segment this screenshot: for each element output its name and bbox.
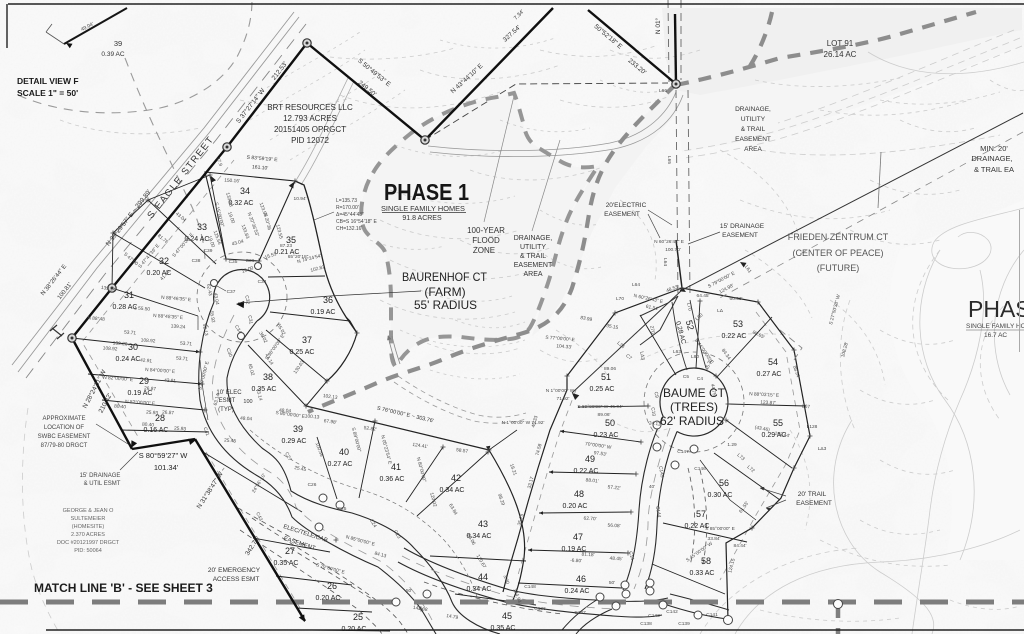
- svg-text:LOCATION OF: LOCATION OF: [44, 425, 85, 431]
- svg-text:89.06': 89.06': [598, 412, 611, 418]
- svg-text:55: 55: [773, 418, 783, 428]
- svg-text:51: 51: [601, 372, 611, 382]
- svg-text:62.70': 62.70': [583, 516, 596, 523]
- svg-text:0.24 AC: 0.24 AC: [565, 588, 590, 595]
- svg-text:39: 39: [293, 424, 303, 434]
- svg-text:& TRAIL: & TRAIL: [741, 126, 766, 133]
- svg-text:BAURENHOF CT: BAURENHOF CT: [402, 270, 488, 284]
- svg-text:65°20’18”: 65°20’18”: [288, 254, 309, 260]
- svg-text:39: 39: [114, 39, 122, 48]
- svg-text:123.87': 123.87': [760, 400, 776, 407]
- svg-text:CB=S 16°54’18" E: CB=S 16°54’18" E: [336, 219, 378, 225]
- svg-text:C39: C39: [204, 248, 213, 254]
- svg-text:81.18': 81.18': [581, 552, 594, 559]
- svg-text:C38: C38: [192, 258, 201, 264]
- svg-text:0.27 AC: 0.27 AC: [328, 461, 353, 468]
- svg-text:15' DRAINAGE: 15' DRAINAGE: [720, 223, 765, 230]
- svg-text:48: 48: [574, 489, 584, 499]
- svg-text:0.24 AC: 0.24 AC: [116, 356, 141, 363]
- svg-text:87.23: 87.23: [280, 243, 292, 249]
- svg-text:25.45: 25.45: [224, 437, 237, 444]
- svg-text:L=135.73: L=135.73: [336, 198, 357, 204]
- svg-text:MATCH LINE 'B' - SEE SHEET 3: MATCH LINE 'B' - SEE SHEET 3: [34, 581, 213, 595]
- svg-text:101.34': 101.34': [154, 463, 179, 472]
- svg-text:EASEMENT: EASEMENT: [735, 136, 771, 143]
- svg-text:38: 38: [263, 372, 273, 382]
- svg-text:45: 45: [502, 611, 512, 621]
- svg-text:30: 30: [128, 342, 138, 352]
- svg-text:88.01': 88.01': [585, 477, 598, 484]
- svg-text:L65: L65: [666, 156, 672, 164]
- svg-text:C146: C146: [694, 466, 706, 472]
- svg-text:71.92': 71.92': [557, 396, 570, 402]
- svg-text:C138: C138: [640, 621, 652, 627]
- svg-text:0.20 AC: 0.20 AC: [342, 626, 367, 633]
- svg-text:100.70': 100.70': [665, 247, 681, 253]
- svg-text:42.91: 42.91: [164, 378, 177, 385]
- svg-text:44: 44: [478, 572, 488, 582]
- svg-text:(TYP): (TYP): [218, 407, 234, 413]
- svg-text:PID 12072: PID 12072: [291, 136, 329, 145]
- svg-text:0.35 AC: 0.35 AC: [274, 560, 299, 567]
- svg-text:L128: L128: [807, 424, 818, 430]
- svg-text:46: 46: [576, 574, 586, 584]
- svg-text:DRAINAGE,: DRAINAGE,: [514, 235, 553, 242]
- svg-text:89.06: 89.06: [604, 366, 616, 372]
- svg-text:58: 58: [701, 556, 711, 566]
- svg-text:32: 32: [159, 256, 169, 266]
- svg-text:C143: C143: [648, 613, 660, 619]
- svg-text:(CENTER OF PEACE): (CENTER OF PEACE): [792, 248, 883, 258]
- svg-text:EASEMENT: EASEMENT: [722, 232, 758, 239]
- svg-text:C5: C5: [683, 374, 689, 380]
- svg-text:ACCESS ESMT: ACCESS ESMT: [213, 576, 260, 583]
- svg-text:0.27 AC: 0.27 AC: [757, 371, 782, 378]
- svg-text:0.25 AC: 0.25 AC: [590, 386, 615, 393]
- svg-text:(FARM): (FARM): [424, 285, 465, 299]
- svg-text:PHASE 1: PHASE 1: [384, 179, 469, 205]
- svg-text:56.08': 56.08': [607, 523, 620, 530]
- svg-text:AREA: AREA: [744, 146, 762, 153]
- svg-text:LΔ3: LΔ3: [818, 446, 827, 452]
- svg-text:S 80°59’27" W: S 80°59’27" W: [139, 451, 189, 460]
- svg-text:50: 50: [605, 418, 615, 428]
- svg-text:53.71: 53.71: [180, 341, 193, 348]
- svg-text:L80: L80: [691, 354, 699, 360]
- svg-text:C34: C34: [258, 279, 267, 285]
- svg-text:N 01°: N 01°: [654, 17, 662, 34]
- svg-text:SWBC EASEMENT: SWBC EASEMENT: [38, 434, 91, 440]
- svg-text:1.29: 1.29: [727, 442, 737, 448]
- svg-text:C139: C139: [678, 621, 690, 627]
- svg-text:DETAIL VIEW F: DETAIL VIEW F: [17, 76, 79, 86]
- svg-text:MIN. 20': MIN. 20': [980, 144, 1008, 153]
- svg-text:139.24: 139.24: [171, 323, 186, 330]
- svg-text:53.71: 53.71: [124, 329, 137, 336]
- svg-text:50': 50': [406, 588, 412, 594]
- svg-text:-6.80': -6.80': [570, 558, 582, 565]
- svg-text:25: 25: [353, 612, 363, 622]
- svg-text:0.22 AC: 0.22 AC: [574, 468, 599, 475]
- svg-text:C35: C35: [229, 259, 238, 265]
- svg-text:0.23 AC: 0.23 AC: [594, 432, 619, 439]
- svg-text:0.33 AC: 0.33 AC: [690, 570, 715, 577]
- svg-text:& TRAIL: & TRAIL: [520, 253, 546, 260]
- svg-text:EASEMENT: EASEMENT: [604, 211, 640, 218]
- svg-text:33: 33: [197, 222, 207, 232]
- svg-text:34: 34: [240, 186, 250, 196]
- svg-text:57.22': 57.22': [607, 484, 620, 491]
- svg-text:48.04: 48.04: [279, 407, 292, 414]
- svg-text:& UTIL ESMT: & UTIL ESMT: [84, 481, 121, 487]
- svg-text:0.19 AC: 0.19 AC: [311, 309, 336, 316]
- svg-text:(TREES): (TREES): [670, 400, 718, 414]
- svg-text:SINGLE FAMILY HOMES: SINGLE FAMILY HOMES: [381, 204, 465, 213]
- svg-text:AREA: AREA: [523, 271, 542, 278]
- svg-text:31: 31: [124, 290, 134, 300]
- svg-text:26.14 AC: 26.14 AC: [824, 50, 857, 59]
- svg-text:N 1°00'00" W: N 1°00'00" W: [546, 388, 575, 394]
- svg-text:0.36 AC: 0.36 AC: [380, 476, 405, 483]
- svg-text:16.7 AC: 16.7 AC: [984, 332, 1007, 339]
- svg-text:27: 27: [285, 546, 295, 556]
- svg-text:UTILITY: UTILITY: [741, 116, 766, 123]
- svg-text:PHASE 2: PHASE 2: [968, 296, 1024, 322]
- svg-text:20' EMERGENCY: 20' EMERGENCY: [208, 567, 261, 574]
- svg-text:62' RADIUS: 62' RADIUS: [660, 414, 724, 428]
- svg-text:DRAINAGE,: DRAINAGE,: [971, 154, 1012, 163]
- svg-text:0.20 AC: 0.20 AC: [563, 503, 588, 510]
- svg-text:53.71: 53.71: [176, 355, 189, 362]
- svg-text:20' TRAIL: 20' TRAIL: [798, 491, 827, 498]
- svg-text:36: 36: [323, 295, 333, 305]
- svg-text:0.34 AC: 0.34 AC: [467, 586, 492, 593]
- svg-text:0.25 AC: 0.25 AC: [290, 349, 315, 356]
- svg-text:26: 26: [327, 581, 337, 591]
- svg-text:48.45': 48.45': [609, 556, 622, 563]
- svg-text:ESMT: ESMT: [219, 398, 236, 404]
- svg-text:40': 40': [649, 484, 655, 490]
- svg-text:0.20 AC: 0.20 AC: [316, 595, 341, 602]
- svg-text:0.39 AC: 0.39 AC: [101, 51, 124, 58]
- svg-text:(HOMESITE): (HOMESITE): [72, 524, 105, 530]
- svg-text:APPROXIMATE: APPROXIMATE: [43, 416, 86, 422]
- svg-text:24.11': 24.11': [649, 420, 662, 427]
- svg-text:48.04: 48.04: [240, 415, 253, 422]
- svg-text:LΔ: LΔ: [717, 308, 724, 314]
- svg-text:0.29 AC: 0.29 AC: [282, 438, 307, 445]
- svg-text:25.93: 25.93: [174, 426, 187, 433]
- svg-text:56: 56: [719, 478, 729, 488]
- svg-text:FRIEDEN ZENTRUM CT: FRIEDEN ZENTRUM CT: [788, 232, 889, 242]
- svg-text:80.40: 80.40: [114, 403, 127, 410]
- svg-text:0.34 AC: 0.34 AC: [440, 487, 465, 494]
- svg-text:C36: C36: [246, 258, 255, 264]
- svg-text:ZONE: ZONE: [473, 246, 495, 255]
- svg-text:26.87: 26.87: [144, 385, 157, 392]
- svg-text:L66: L66: [659, 88, 667, 94]
- svg-text:12.793 ACRES: 12.793 ACRES: [283, 114, 337, 123]
- svg-text:37: 37: [302, 335, 312, 345]
- svg-text:C142: C142: [666, 609, 678, 615]
- svg-text:EASEMENT: EASEMENT: [514, 262, 553, 269]
- svg-text:57: 57: [696, 509, 706, 519]
- svg-text:LOT 91: LOT 91: [827, 39, 854, 48]
- svg-text:R=170.00': R=170.00': [336, 205, 359, 211]
- svg-text:10.94': 10.94': [294, 196, 307, 202]
- svg-text:15' DRAINAGE: 15' DRAINAGE: [80, 473, 121, 479]
- svg-text:C37: C37: [227, 289, 236, 295]
- svg-text:80.40: 80.40: [142, 422, 155, 429]
- svg-text:41: 41: [391, 462, 401, 472]
- svg-text:29: 29: [139, 376, 149, 386]
- svg-text:60.53': 60.53': [730, 296, 743, 302]
- svg-text:20'ELECTRIC: 20'ELECTRIC: [606, 202, 647, 209]
- svg-text:CH=132.16': CH=132.16': [336, 226, 362, 232]
- svg-text:26.87: 26.87: [162, 410, 175, 417]
- svg-text:2.370 ACRES: 2.370 ACRES: [71, 532, 105, 538]
- svg-text:53: 53: [733, 319, 743, 329]
- svg-text:47: 47: [573, 532, 583, 542]
- svg-text:43: 43: [478, 519, 488, 529]
- svg-text:55' RADIUS: 55' RADIUS: [414, 298, 477, 312]
- svg-text:C147: C147: [574, 610, 586, 616]
- svg-text:20151405 OPRGCT: 20151405 OPRGCT: [274, 125, 346, 134]
- svg-text:N 60°26'43" E: N 60°26'43" E: [654, 239, 684, 245]
- svg-text:PID: 50064: PID: 50064: [74, 548, 102, 554]
- svg-text:FLOOD: FLOOD: [472, 236, 500, 245]
- svg-text:91.8 ACRES: 91.8 ACRES: [402, 215, 442, 222]
- svg-text:0.30 AC: 0.30 AC: [708, 492, 733, 499]
- svg-text:C25: C25: [338, 506, 347, 512]
- svg-text:84.44': 84.44': [734, 543, 747, 549]
- svg-text:108.92: 108.92: [141, 337, 156, 344]
- svg-text:GEORGE & JEAN O: GEORGE & JEAN O: [63, 508, 114, 514]
- svg-text:L07: L07: [802, 404, 811, 410]
- svg-text:0.22 AC: 0.22 AC: [722, 333, 747, 340]
- svg-text:L70: L70: [616, 296, 624, 302]
- svg-text:C148: C148: [524, 584, 536, 590]
- svg-text:Δ=45°44’43": Δ=45°44’43": [336, 212, 364, 218]
- svg-text:BRT RESOURCES LLC: BRT RESOURCES LLC: [267, 103, 353, 112]
- svg-text:64.45': 64.45': [697, 293, 710, 299]
- svg-text:C4: C4: [697, 376, 703, 382]
- svg-text:S 89°00'00" W 45.04': S 89°00'00" W 45.04': [577, 404, 622, 410]
- svg-text:C141: C141: [706, 612, 718, 618]
- svg-text:42: 42: [451, 473, 461, 483]
- svg-text:150.16': 150.16': [224, 178, 240, 185]
- svg-text:SULTEMEIER: SULTEMEIER: [71, 516, 106, 522]
- svg-text:C136: C136: [534, 606, 546, 612]
- svg-text:(FUTURE): (FUTURE): [817, 263, 860, 273]
- svg-text:SINGLE FAMILY HOMES: SINGLE FAMILY HOMES: [966, 323, 1024, 330]
- svg-text:DRAINAGE,: DRAINAGE,: [735, 106, 771, 113]
- svg-text:0.16 AC: 0.16 AC: [144, 427, 169, 434]
- svg-text:33.84': 33.84': [708, 536, 721, 542]
- svg-text:40: 40: [339, 447, 349, 457]
- svg-text:& TRAIL EA: & TRAIL EA: [974, 165, 1014, 174]
- svg-text:25.93: 25.93: [146, 409, 159, 416]
- svg-text:100: 100: [243, 399, 252, 405]
- svg-text:DOC #20121997 DRGCT: DOC #20121997 DRGCT: [57, 540, 120, 546]
- svg-text:C26: C26: [308, 482, 317, 488]
- svg-text:SCALE 1" = 50': SCALE 1" = 50': [17, 88, 78, 98]
- svg-text:S 85°00'00" E: S 85°00'00" E: [705, 526, 735, 532]
- svg-text:EASEMENT: EASEMENT: [796, 500, 832, 507]
- svg-text:42.91: 42.91: [140, 357, 153, 364]
- svg-text:UTILITY: UTILITY: [520, 244, 546, 251]
- svg-text:L63: L63: [673, 349, 681, 355]
- svg-text:100-YEAR: 100-YEAR: [467, 226, 505, 235]
- svg-text:0.35 AC: 0.35 AC: [491, 625, 516, 632]
- svg-text:L64: L64: [662, 258, 668, 266]
- svg-text:L64: L64: [632, 282, 640, 288]
- svg-text:87/79-80 DRGCT: 87/79-80 DRGCT: [41, 443, 88, 449]
- svg-text:54: 54: [768, 357, 778, 367]
- svg-text:C147: C147: [677, 449, 689, 455]
- svg-text:50': 50': [609, 580, 615, 586]
